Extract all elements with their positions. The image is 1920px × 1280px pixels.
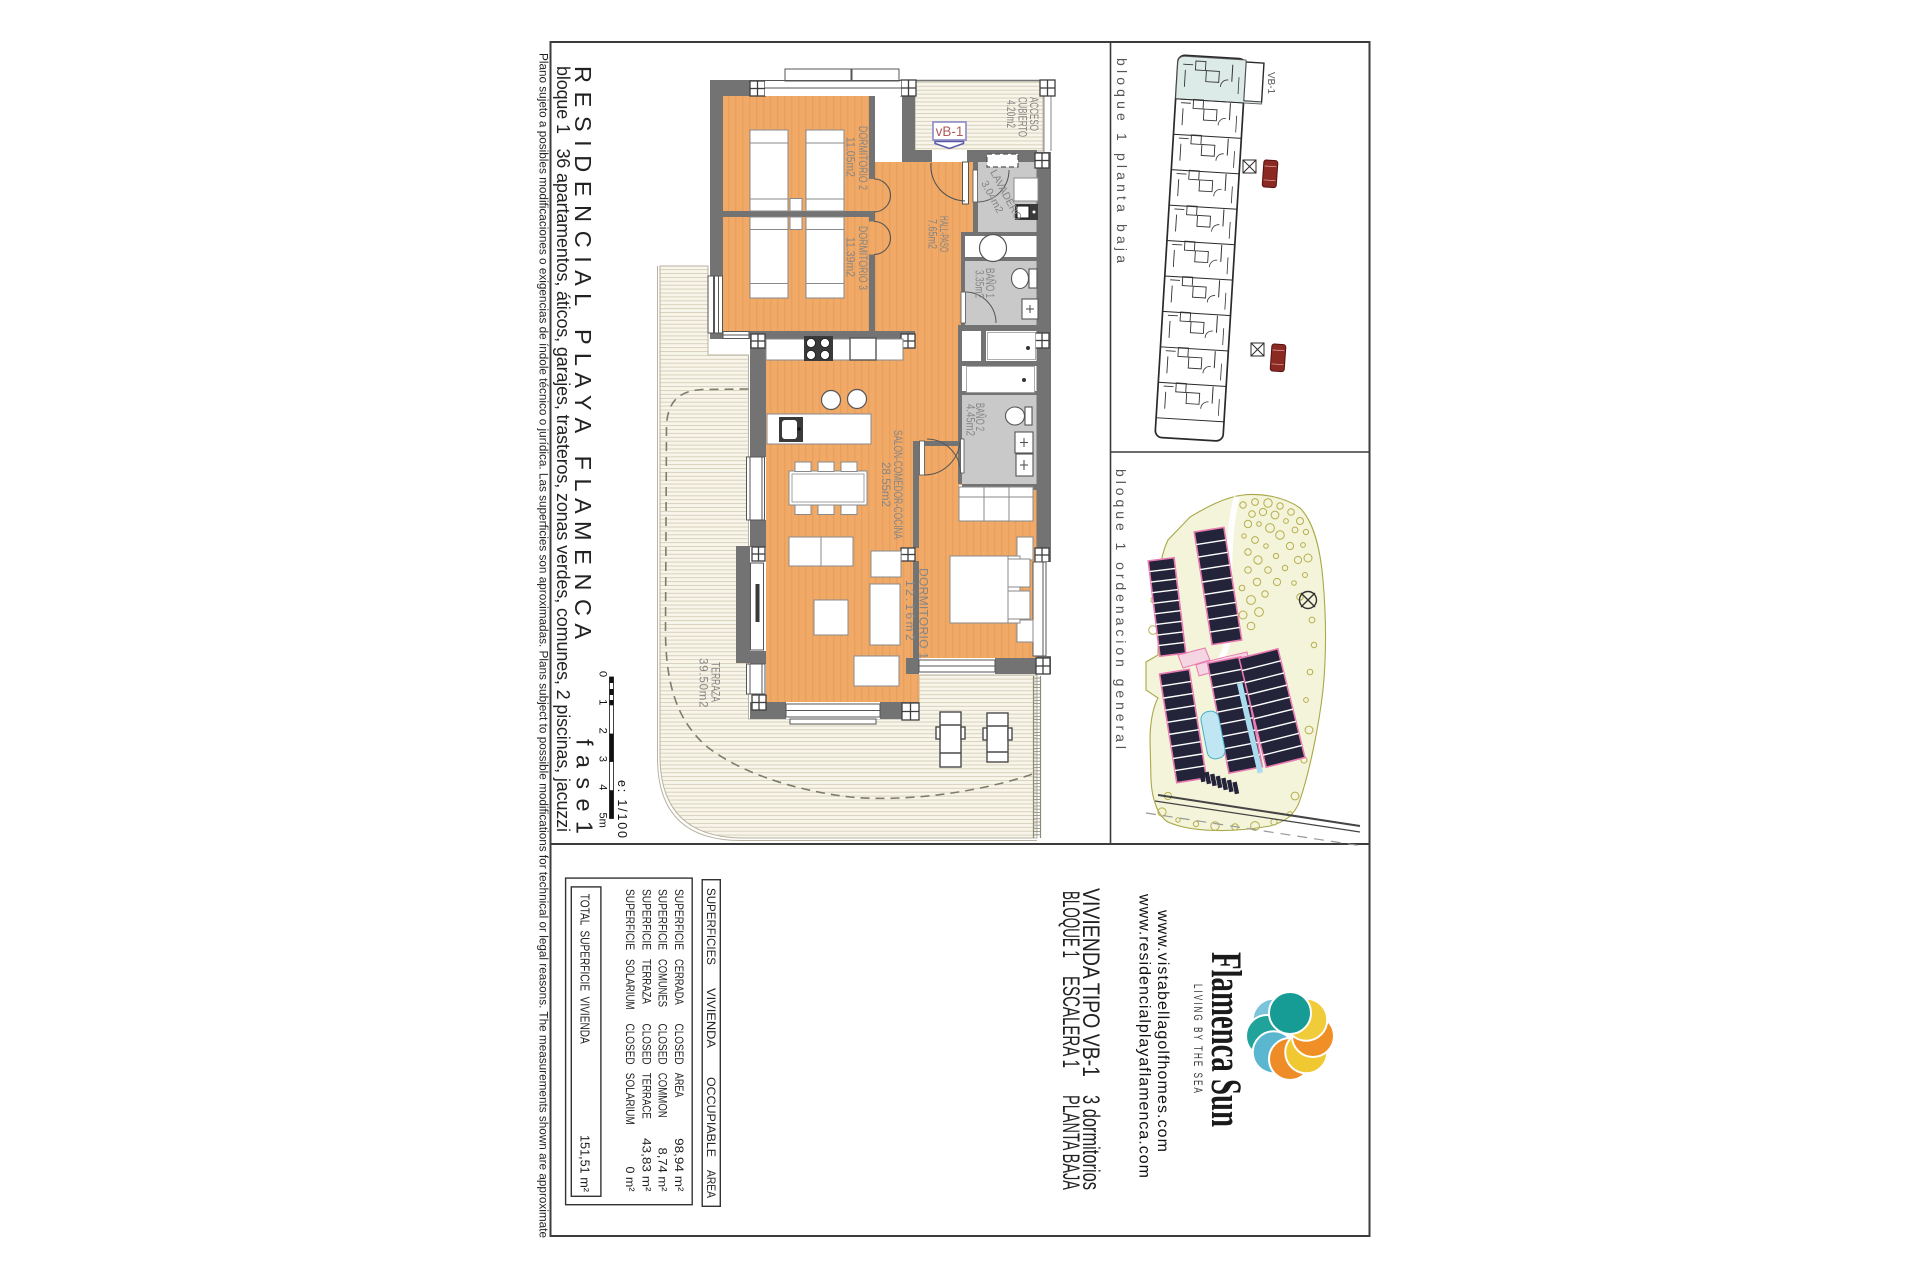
svg-text:Plano sujeto a posibles modifi: Plano sujeto a posibles modificaciones o… — [537, 53, 549, 1238]
svg-text:CLOSED: CLOSED — [656, 1024, 670, 1065]
svg-text:OCCUPIABLE: OCCUPIABLE — [704, 1077, 718, 1157]
svg-text:98,94 m²: 98,94 m² — [672, 1138, 686, 1191]
svg-text:SALON-COMEDOR-COCINA: SALON-COMEDOR-COCINA — [891, 430, 903, 539]
svg-text:COMUNES: COMUNES — [656, 959, 670, 1007]
svg-text:4: 4 — [597, 784, 609, 790]
svg-text:TERRAZA: TERRAZA — [640, 959, 654, 1004]
svg-text:TERRAZA: TERRAZA — [709, 662, 721, 702]
svg-text:3.35m2: 3.35m2 — [973, 270, 985, 298]
svg-text:AREA: AREA — [672, 1073, 686, 1098]
svg-text:SOLARIUM: SOLARIUM — [623, 1073, 637, 1125]
svg-text:DORMITORIO 1: DORMITORIO 1 — [917, 568, 931, 659]
svg-text:COMMON: COMMON — [656, 1073, 670, 1118]
svg-text:0: 0 — [597, 671, 609, 677]
svg-text:PLANTA BAJA: PLANTA BAJA — [1057, 1095, 1084, 1190]
svg-text:DORMITORIO 2: DORMITORIO 2 — [856, 126, 868, 190]
svg-text:SUPERFICIE: SUPERFICIE — [672, 889, 686, 950]
svg-text:TERRACE: TERRACE — [640, 1073, 654, 1119]
svg-text:2: 2 — [597, 728, 609, 734]
svg-text:3: 3 — [597, 756, 609, 762]
svg-text:11.05m2: 11.05m2 — [844, 137, 856, 177]
svg-text:4.20m2: 4.20m2 — [1004, 100, 1016, 128]
svg-text:DORMITORIO 3: DORMITORIO 3 — [856, 226, 868, 290]
svg-text:Flamenca Sun: Flamenca Sun — [1202, 952, 1249, 1127]
svg-text:SUPERFICIE: SUPERFICIE — [656, 889, 670, 950]
svg-text:VB-1: VB-1 — [1265, 72, 1277, 94]
svg-text:b l o q u e 1 o r d e n a: b l o q u e 1 o r d e n a c i o n g e n … — [1113, 469, 1129, 749]
svg-text:VIVIENDA: VIVIENDA — [704, 988, 718, 1048]
svg-text:SUPERFICIE: SUPERFICIE — [640, 889, 654, 950]
svg-text:BLOQUE 1: BLOQUE 1 — [1057, 891, 1084, 958]
svg-text:12.16m2: 12.16m2 — [903, 580, 917, 643]
svg-text:b l o q u e 1 p l a n t a: b l o q u e 1 p l a n t a b a j a — [1114, 58, 1130, 263]
svg-text:CLOSED: CLOSED — [623, 1024, 637, 1065]
svg-text:CLOSED: CLOSED — [672, 1024, 686, 1065]
svg-text:CERRADA: CERRADA — [672, 959, 686, 1005]
svg-text:SOLARIUM: SOLARIUM — [623, 959, 637, 1010]
svg-text:5m: 5m — [597, 813, 609, 828]
svg-text:www.vistabellagolfhomes.com: www.vistabellagolfhomes.com — [1154, 909, 1171, 1152]
svg-text:11.39m2: 11.39m2 — [844, 237, 856, 277]
svg-text:151,51 m²: 151,51 m² — [578, 1135, 592, 1192]
svg-text:SUPERFICIES: SUPERFICIES — [704, 888, 718, 965]
svg-text:7.65m2: 7.65m2 — [926, 219, 938, 249]
svg-text:28.55m2: 28.55m2 — [879, 462, 891, 507]
svg-text:43,83 m²: 43,83 m² — [640, 1138, 654, 1192]
svg-text:ACCESO: ACCESO — [1027, 97, 1039, 131]
svg-text:HALL-PASO: HALL-PASO — [937, 216, 949, 252]
svg-text:SUPERFICIE: SUPERFICIE — [623, 889, 637, 950]
svg-text:39.50m2: 39.50m2 — [697, 658, 709, 708]
svg-text:0 m²: 0 m² — [623, 1167, 637, 1192]
svg-text:AREA: AREA — [704, 1170, 718, 1198]
svg-text:ESCALERA 1: ESCALERA 1 — [1057, 976, 1084, 1068]
svg-text:CLOSED: CLOSED — [640, 1024, 654, 1065]
svg-text:www.residencialplayaflamenca.c: www.residencialplayaflamenca.com — [1136, 893, 1153, 1178]
svg-text:8,74 m²: 8,74 m² — [656, 1148, 670, 1192]
svg-text:LIVING BY THE SEA: LIVING BY THE SEA — [1191, 984, 1203, 1095]
svg-text:vB-1: vB-1 — [936, 124, 964, 139]
svg-text:bloque 1 36 apartamentos, át: bloque 1 36 apartamentos, áticos, garaje… — [553, 66, 573, 832]
svg-text:CUBIERTO: CUBIERTO — [1016, 97, 1028, 137]
svg-text:1: 1 — [597, 699, 609, 705]
svg-text:4.45m2: 4.45m2 — [964, 404, 976, 436]
svg-text:TOTAL SUPERFICIE VIVIENDA: TOTAL SUPERFICIE VIVIENDA — [578, 894, 592, 1045]
